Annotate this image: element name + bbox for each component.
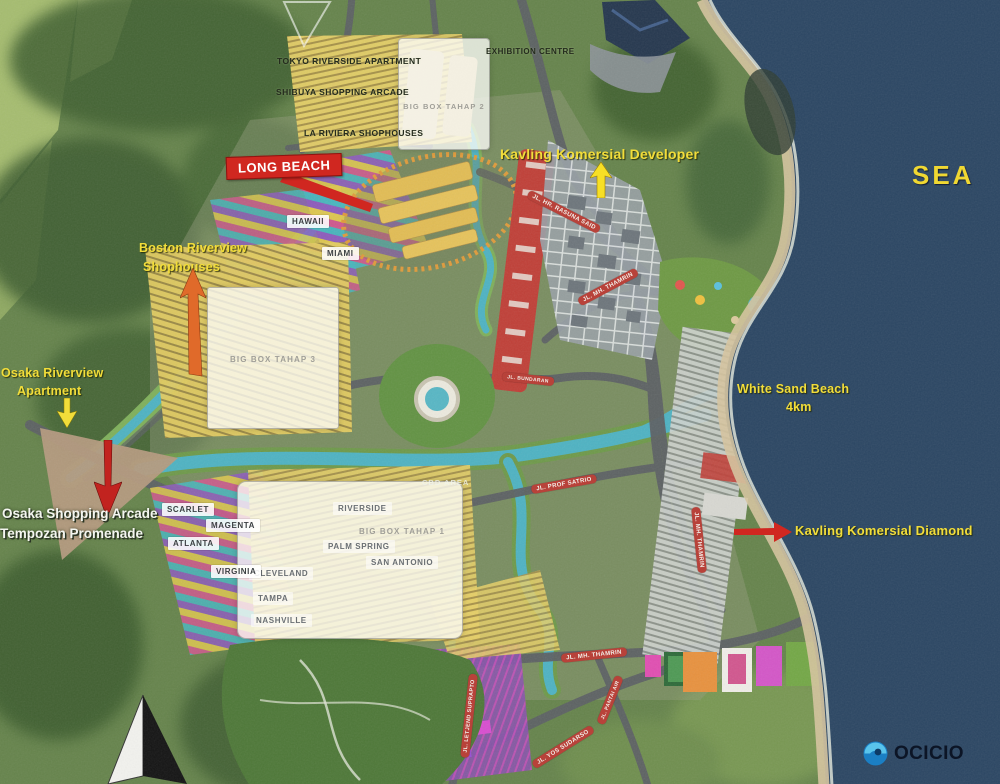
overlay-title: BIG BOX TAHAP 3 (218, 355, 328, 364)
kavling-diamond-label: Kavling Komersial Diamond (795, 523, 973, 538)
district-label: RIVERSIDE (333, 502, 392, 515)
district-label-magenta: MAGENTA (206, 519, 260, 532)
map-art (0, 0, 1000, 784)
district-label-virginia: VIRGINIA (211, 565, 261, 578)
osaka-apartment-line1: Osaka Riverview (1, 366, 103, 380)
district-label: TAMPA (253, 592, 293, 605)
white-sand-line1: White Sand Beach (737, 382, 849, 396)
osaka-arcade-line2: Tempozan Promenade (0, 526, 143, 541)
overlay-title: BIG BOX TAHAP 1 (346, 527, 458, 536)
boston-arrow-icon (180, 268, 210, 378)
osaka-apartment-line2: Apartment (17, 384, 81, 398)
sea-label: SEA (912, 160, 974, 191)
long-beach-pointer (280, 172, 376, 214)
diamond-arrow-icon (734, 522, 792, 542)
label-la-riviera: LA RIVIERA SHOPHOUSES (304, 128, 423, 138)
developer-up-arrow-icon (590, 162, 612, 198)
boston-label-line1: Boston Riverview (139, 241, 247, 255)
ocicio-logo-icon (862, 740, 889, 767)
osaka-apartment-down-arrow-icon (57, 398, 77, 428)
district-label: NASHVILLE (251, 614, 312, 627)
district-label: PALM SPRING (323, 540, 395, 553)
label-exhibition-centre: EXHIBITION CENTRE (486, 47, 575, 56)
long-beach-callout: LONG BEACH (226, 153, 343, 180)
district-label-hawaii: HAWAII (287, 215, 329, 228)
kavling-developer-label: Kavling Komersial Developer (500, 146, 699, 162)
osaka-arcade-line1: Osaka Shopping Arcade (2, 506, 158, 521)
district-label: SAN ANTONIO (366, 556, 438, 569)
masterplan-map: BIG BOX TAHAP 2 BIG BOX TAHAP 3 BIG BOX … (0, 0, 1000, 784)
ocicio-logo-text: OCICIO (894, 743, 964, 765)
district-label-miami: MIAMI (322, 247, 359, 260)
overlay-big-box-tahap-1: BIG BOX TAHAP 1 RIVERSIDE PALM SPRING SA… (237, 481, 463, 639)
white-sand-line2: 4km (786, 400, 812, 414)
label-tokyo-riverside: TOKYO RIVERSIDE APARTMENT (277, 56, 421, 66)
overlay-big-box-tahap-3: BIG BOX TAHAP 3 (207, 287, 339, 429)
overlay-title: BIG BOX TAHAP 2 (395, 102, 493, 111)
label-shibuya-arcade: SHIBUYA SHOPPING ARCADE (276, 87, 409, 97)
district-label-atlanta: ATLANTA (168, 537, 219, 550)
district-label-scarlet: SCARLET (162, 503, 214, 516)
grain-texture (0, 0, 1000, 784)
label-cbd-area: CBD AREA (422, 478, 469, 487)
ocicio-logo: OCICIO (862, 740, 964, 767)
